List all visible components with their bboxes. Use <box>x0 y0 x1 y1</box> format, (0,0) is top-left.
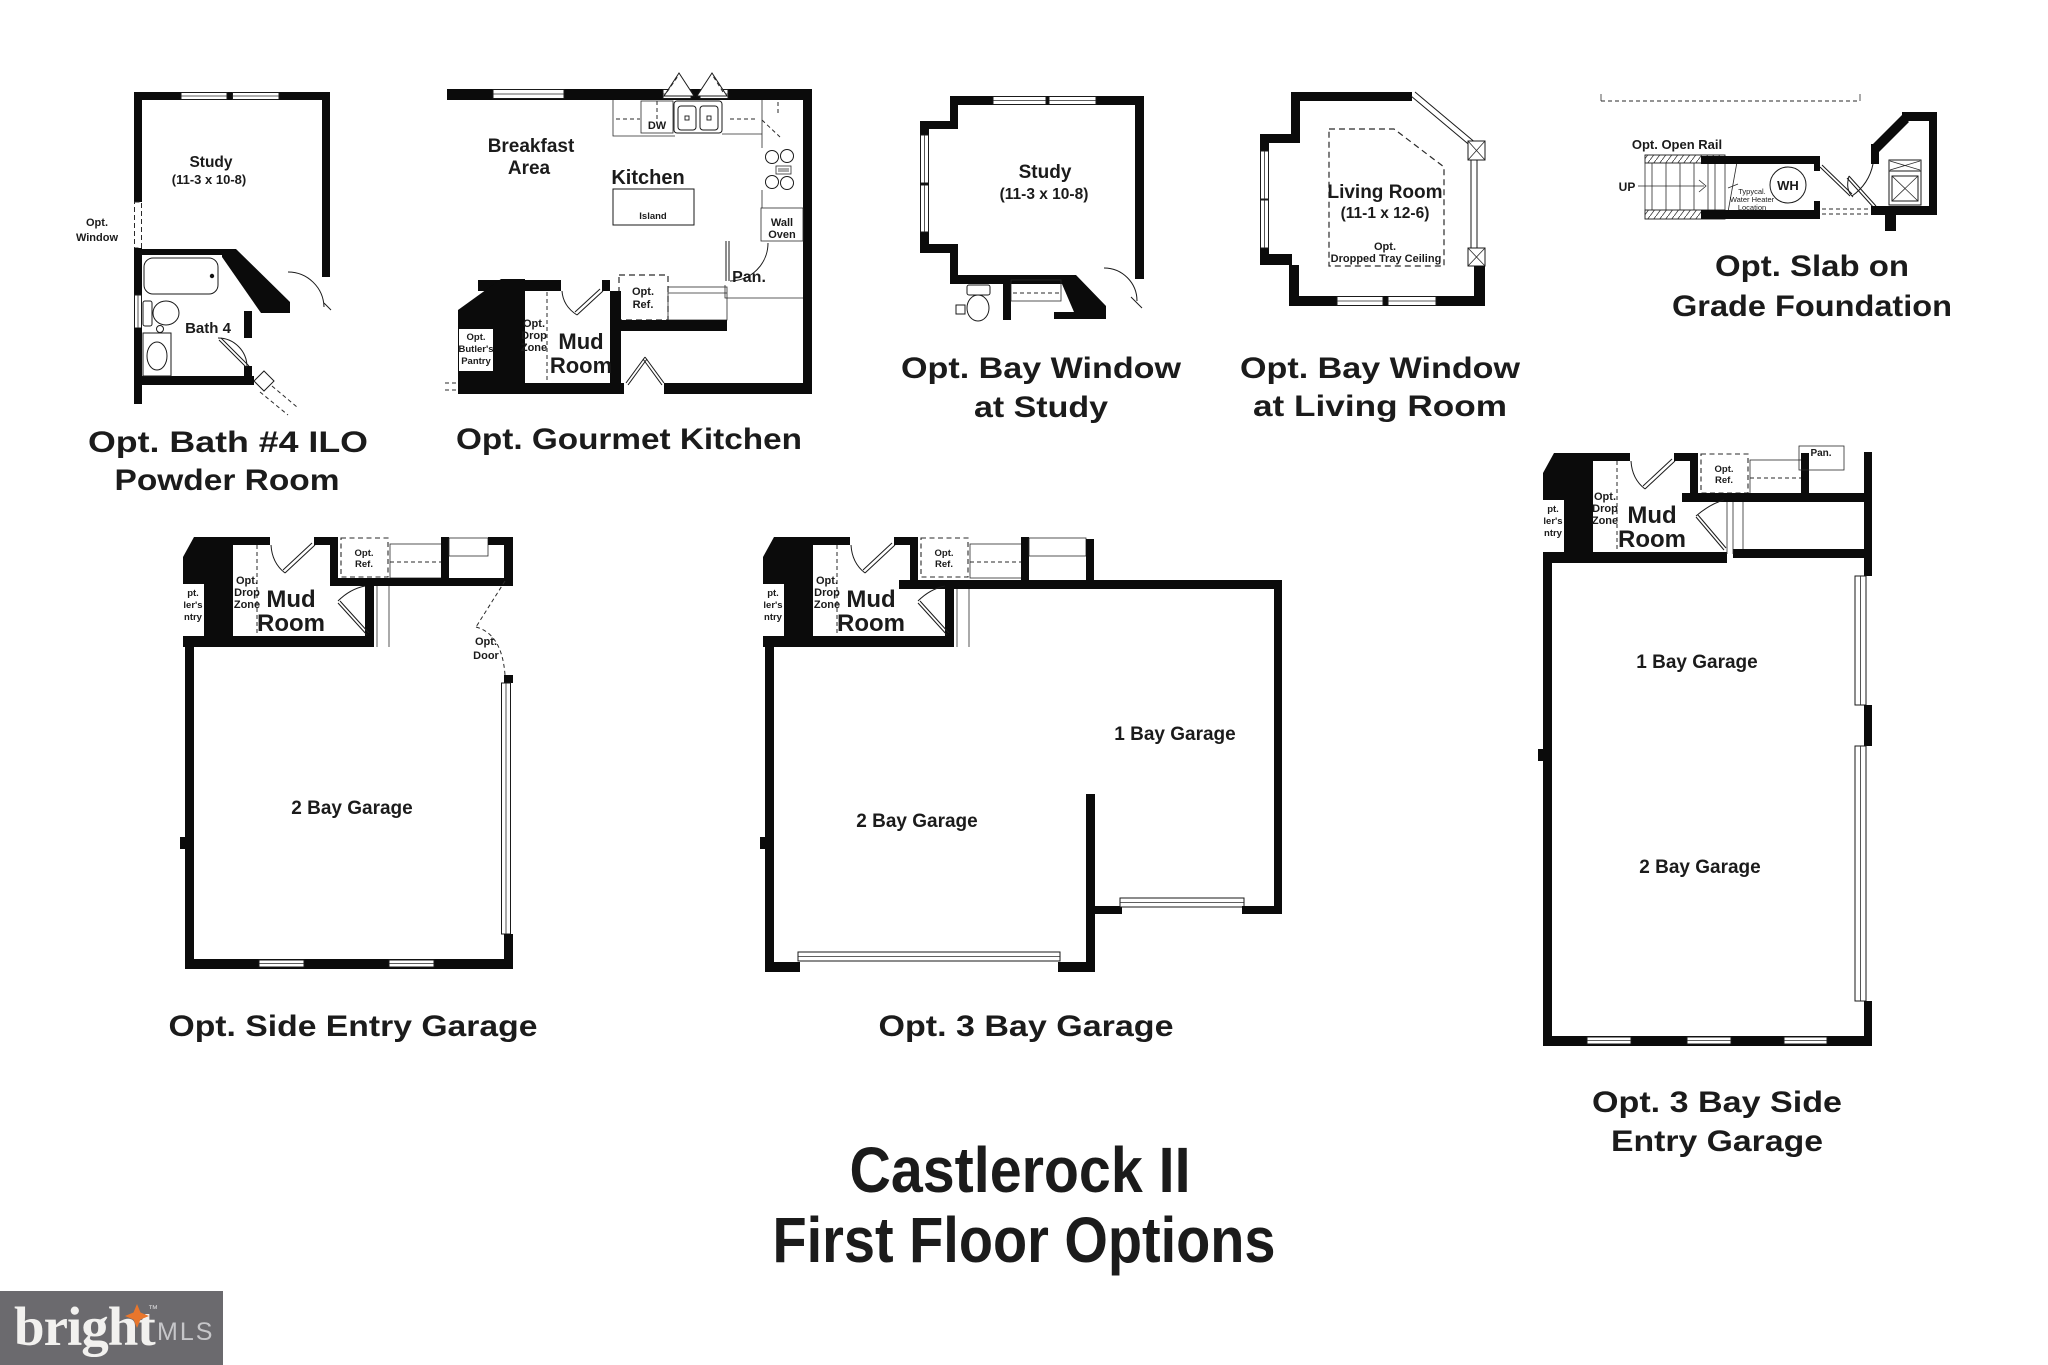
svg-text:Opt.: Opt. <box>632 286 654 298</box>
svg-text:(11-3 x 10-8): (11-3 x 10-8) <box>1000 186 1089 203</box>
svg-text:Study: Study <box>1019 162 1072 183</box>
svg-text:WH: WH <box>1777 178 1799 193</box>
svg-text:pt.: pt. <box>1547 504 1559 515</box>
svg-text:Entry Garage: Entry Garage <box>1611 1125 1823 1158</box>
svg-text:Bath 4: Bath 4 <box>185 320 232 337</box>
svg-text:Grade Foundation: Grade Foundation <box>1672 290 1952 323</box>
svg-text:bright: bright <box>14 1296 156 1357</box>
svg-text:UP: UP <box>1619 180 1636 194</box>
svg-text:Opt. Gourmet Kitchen: Opt. Gourmet Kitchen <box>456 423 802 456</box>
svg-text:Opt.: Opt. <box>86 217 108 229</box>
svg-text:at Study: at Study <box>974 391 1108 424</box>
svg-text:Ref.: Ref. <box>355 559 373 570</box>
svg-text:Opt. Bath #4 ILO: Opt. Bath #4 ILO <box>88 426 368 459</box>
svg-text:Opt.: Opt. <box>475 636 497 648</box>
svg-text:Island: Island <box>639 211 667 222</box>
svg-text:Mud: Mud <box>266 586 315 613</box>
svg-text:pt.: pt. <box>767 588 779 599</box>
svg-text:Breakfast: Breakfast <box>488 136 575 157</box>
svg-text:Drop: Drop <box>521 330 547 342</box>
svg-text:Room: Room <box>550 353 612 378</box>
svg-text:Window: Window <box>76 232 118 244</box>
svg-text:Room: Room <box>1618 526 1686 553</box>
svg-text:Living Room: Living Room <box>1327 182 1442 203</box>
svg-text:Room: Room <box>257 610 325 637</box>
svg-text:Opt.: Opt. <box>1594 491 1616 503</box>
svg-text:ler's: ler's <box>1543 516 1562 527</box>
svg-text:Opt.: Opt. <box>816 575 838 587</box>
svg-text:ntry: ntry <box>184 612 203 623</box>
svg-text:2 Bay Garage: 2 Bay Garage <box>291 798 412 819</box>
svg-text:Opt.: Opt. <box>355 548 374 559</box>
svg-text:(11-3 x 10-8): (11-3 x 10-8) <box>172 172 246 187</box>
svg-text:Opt. Open Rail: Opt. Open Rail <box>1632 137 1722 152</box>
svg-text:Opt. Side Entry Garage: Opt. Side Entry Garage <box>169 1010 538 1043</box>
svg-text:ntry: ntry <box>764 612 783 623</box>
svg-text:Opt. 3 Bay Side: Opt. 3 Bay Side <box>1592 1086 1842 1119</box>
svg-text:1 Bay Garage: 1 Bay Garage <box>1636 652 1757 673</box>
svg-text:Ref.: Ref. <box>633 299 654 311</box>
svg-text:Oven: Oven <box>768 229 796 241</box>
svg-text:Opt. 3 Bay Garage: Opt. 3 Bay Garage <box>879 1010 1174 1043</box>
svg-text:Butler's: Butler's <box>459 344 494 355</box>
svg-text:ler's: ler's <box>763 600 782 611</box>
svg-text:Opt.: Opt. <box>935 548 954 559</box>
svg-text:Location: Location <box>1738 203 1766 212</box>
svg-text:Pan.: Pan. <box>732 269 766 286</box>
svg-text:Room: Room <box>837 610 905 637</box>
svg-text:Drop: Drop <box>814 587 840 599</box>
svg-text:Mud: Mud <box>846 586 895 613</box>
svg-text:Drop: Drop <box>234 587 260 599</box>
svg-text:Opt. Bay Window: Opt. Bay Window <box>1240 352 1521 385</box>
svg-text:Ref.: Ref. <box>935 559 953 570</box>
svg-text:2 Bay Garage: 2 Bay Garage <box>1639 857 1760 878</box>
svg-text:Opt.: Opt. <box>236 575 258 587</box>
svg-text:DW: DW <box>648 120 667 132</box>
svg-text:Pantry: Pantry <box>461 356 491 367</box>
svg-text:Door: Door <box>473 650 499 662</box>
svg-text:Mud: Mud <box>1627 502 1676 529</box>
svg-text:Opt. Bay Window: Opt. Bay Window <box>901 352 1182 385</box>
svg-text:Opt.: Opt. <box>523 318 545 330</box>
svg-text:Castlerock II: Castlerock II <box>850 1134 1191 1206</box>
svg-text:Wall: Wall <box>771 217 793 229</box>
svg-text:pt.: pt. <box>187 588 199 599</box>
svg-text:Opt.: Opt. <box>1715 464 1734 475</box>
svg-text:Area: Area <box>508 158 551 179</box>
svg-text:Opt.: Opt. <box>1374 241 1396 253</box>
svg-text:™: ™ <box>148 1304 158 1315</box>
svg-text:2 Bay Garage: 2 Bay Garage <box>856 811 977 832</box>
svg-text:Drop: Drop <box>1592 503 1618 515</box>
svg-text:Opt.: Opt. <box>467 332 486 343</box>
svg-text:ntry: ntry <box>1544 528 1563 539</box>
svg-text:at Living Room: at Living Room <box>1253 390 1507 423</box>
svg-text:Zone: Zone <box>1592 515 1618 527</box>
svg-text:Ref.: Ref. <box>1715 475 1733 486</box>
svg-text:Zone: Zone <box>521 342 547 354</box>
svg-text:1 Bay Garage: 1 Bay Garage <box>1114 724 1235 745</box>
svg-text:Opt. Slab on: Opt. Slab on <box>1715 250 1909 283</box>
svg-text:Powder Room: Powder Room <box>115 464 340 497</box>
svg-text:First Floor Options: First Floor Options <box>773 1204 1276 1276</box>
svg-text:(11-1 x 12-6): (11-1 x 12-6) <box>1341 205 1430 222</box>
svg-text:Pan.: Pan. <box>1810 448 1831 459</box>
svg-text:Dropped Tray Ceiling: Dropped Tray Ceiling <box>1331 253 1442 265</box>
svg-text:Study: Study <box>189 154 232 171</box>
svg-text:Mud: Mud <box>558 329 603 354</box>
svg-text:MLS: MLS <box>157 1318 214 1346</box>
svg-text:Kitchen: Kitchen <box>611 167 684 189</box>
svg-text:ler's: ler's <box>183 600 202 611</box>
